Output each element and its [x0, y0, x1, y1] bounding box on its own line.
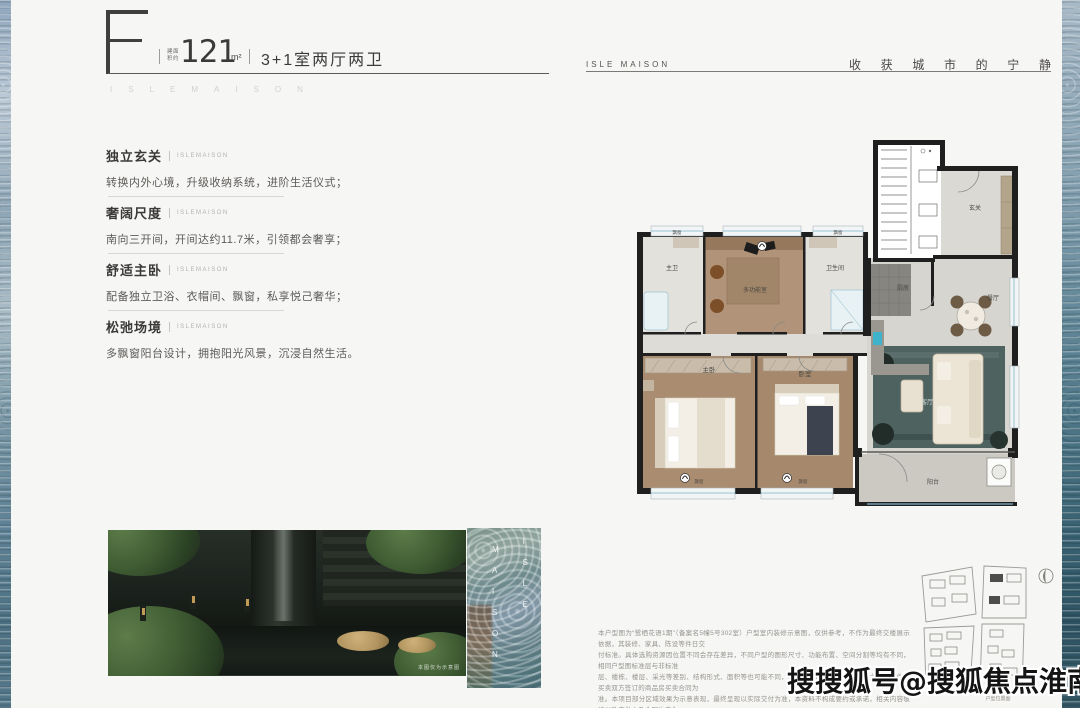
unit-type-letter [106, 10, 152, 74]
feature-desc: 配备独立卫浴、衣帽间、飘窗，私享悦己奢华； [106, 288, 396, 304]
coffee-table [901, 380, 923, 412]
vanity [673, 237, 699, 248]
letter-stroke [106, 10, 110, 74]
room-label: 卫生间 [826, 264, 844, 272]
plant [872, 423, 894, 445]
photo-foliage [108, 530, 200, 576]
divider [169, 265, 170, 275]
letter-stroke [106, 39, 142, 42]
left-texture-strip [0, 0, 11, 708]
white-card: 建面 积约 121 m² 3+1室两厅两卫 ISLEMAISON ISLE MA… [11, 0, 1062, 708]
photo-lantern [244, 596, 250, 612]
photo-lantern [190, 593, 196, 609]
disclaimer-line: 本户型图为“鹭栖花语1期”（备案名5幢5号302室）户型室内装修示意图，仅供参考… [598, 628, 910, 650]
feature-title: 奢阔尺度 [106, 203, 162, 222]
room-label: 主卫 [666, 264, 678, 272]
floor-corridor [641, 334, 867, 356]
glass-letter: A [492, 566, 499, 575]
site-highlighted-buildings [989, 574, 1003, 604]
stool [710, 265, 724, 279]
room-label: 卧室 [799, 369, 813, 378]
bed-headboard [655, 398, 665, 468]
feature-block-2: 奢阔尺度 ISLEMAISON 南向三开间，开间达约11.7米，引领都会奢享； [106, 203, 396, 247]
feature-block-3: 舒适主卧 ISLEMAISON 配备独立卫浴、衣帽间、飘窗，私享悦己奢华； [106, 260, 396, 304]
feature-divider [108, 253, 284, 254]
dining-chair [951, 324, 964, 337]
bed-headboard [775, 384, 839, 393]
feature-title: 独立玄关 [106, 146, 162, 165]
header-rule-right [586, 71, 1051, 72]
kitchen-counter [871, 364, 929, 375]
brochure-page: 建面 积约 121 m² 3+1室两厅两卫 ISLEMAISON ISLE MA… [0, 0, 1080, 708]
dining-chair [979, 324, 992, 337]
header-rule [108, 73, 549, 74]
feature-block-4: 松弛场境 ISLEMAISON 多飘窗阳台设计，拥抱阳光风景，沉浸自然生活。 [106, 317, 396, 361]
photo-caption: 本图仅为示意图 [418, 664, 460, 671]
glass-letter: N [492, 650, 499, 659]
glass-letter: I [492, 587, 499, 596]
glass-letter: S [523, 558, 528, 567]
glass-letter: I [523, 537, 528, 546]
glass-letter: O [492, 629, 499, 638]
room-label: 玄关 [969, 204, 981, 212]
unit-layout: 3+1室两厅两卫 [261, 46, 384, 70]
header-separator [249, 49, 250, 64]
vertical-brand-maison: MAISON [492, 545, 499, 659]
glass-brand-panel: MAISON ISLE [467, 528, 541, 688]
photo-waterfall [273, 530, 294, 621]
vertical-brand-isle: ISLE [523, 537, 528, 609]
feature-desc: 转换内外心境，升级收纳系统，进阶生活仪式； [106, 174, 396, 190]
glass-blurred-image [467, 605, 492, 688]
plant [990, 431, 1008, 449]
floorplan: 玄关主卫多功能室卫生间厨房餐厅主卧卧室客厅阳台飘窗飘窗飘窗飘窗 [627, 140, 1025, 516]
feature-tag: ISLEMAISON [177, 267, 229, 273]
dining-chair [951, 296, 964, 309]
feature-desc: 南向三开间，开间达约11.7米，引领都会奢享； [106, 231, 396, 247]
feature-tag: ISLEMAISON [177, 153, 229, 159]
glass-letter: E [523, 600, 528, 609]
glass-letter: S [492, 608, 499, 617]
room-label: 厨房 [897, 284, 909, 292]
entry-closet [1001, 176, 1013, 254]
nightstand [643, 380, 654, 391]
area-value: 121 [180, 34, 236, 70]
feature-divider [108, 310, 284, 311]
glass-letter: L [523, 579, 528, 588]
room-label: 飘窗 [799, 478, 808, 485]
photo-foliage [108, 606, 224, 676]
watermark: 搜搜狐号@搜狐焦点淮南站 [787, 660, 1080, 700]
compass-icon [1039, 569, 1053, 583]
room-label: 主卧 [703, 365, 717, 374]
table [727, 258, 779, 304]
room-label: 飘窗 [834, 229, 843, 236]
glass-letter: M [492, 545, 499, 554]
kitchen-sink [873, 332, 882, 345]
courtyard-photo: 本图仅为示意图 [108, 530, 466, 676]
divider [169, 151, 170, 161]
photo-lantern [140, 605, 146, 621]
area-prefix: 建面 积约 [167, 49, 179, 63]
bed-blanket [807, 406, 833, 455]
wardrobe [763, 358, 847, 371]
feature-divider [108, 196, 284, 197]
feature-desc: 多飘窗阳台设计，拥抱阳光风景，沉浸自然生活。 [106, 345, 396, 361]
vanity [809, 237, 837, 248]
room-label: 飘窗 [673, 229, 682, 236]
photo-rattan-pouf [398, 637, 436, 653]
feature-tag: ISLEMAISON [177, 324, 229, 330]
room-label: 阳台 [927, 478, 939, 486]
feature-title: 松弛场境 [106, 317, 162, 336]
letter-stroke [106, 10, 148, 14]
brand-name: ISLE MAISON [586, 60, 670, 69]
area-unit: m² [231, 52, 242, 62]
divider [169, 208, 170, 218]
bathtub [644, 292, 668, 330]
header-separator [159, 49, 160, 64]
room-label: 餐厅 [987, 294, 999, 302]
divider [169, 322, 170, 332]
stool [710, 299, 724, 313]
room-label: 飘窗 [695, 478, 704, 485]
feature-title: 舒适主卧 [106, 260, 162, 279]
brand-watermark-text: ISLEMAISON [110, 85, 319, 94]
feature-block-1: 独立玄关 ISLEMAISON 转换内外心境，升级收纳系统，进阶生活仪式； [106, 146, 396, 190]
room-label: 多功能室 [743, 286, 767, 294]
feature-tag: ISLEMAISON [177, 210, 229, 216]
room-label: 客厅 [921, 397, 935, 406]
